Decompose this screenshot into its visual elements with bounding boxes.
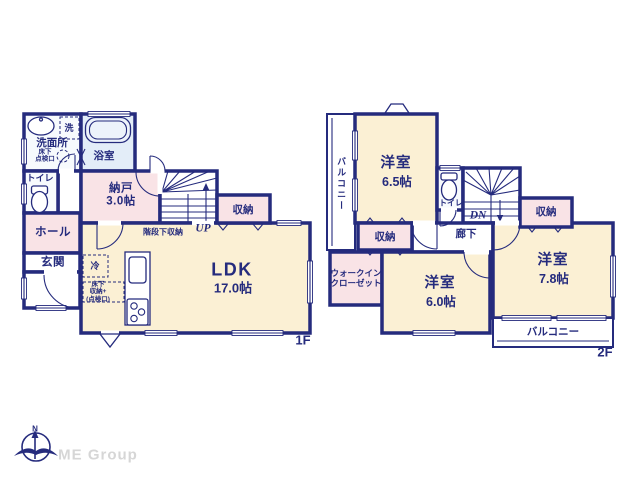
closet-east-room (520, 198, 572, 227)
floor1-walls (24, 114, 310, 333)
floorplan-canvas: 洗 洗面所 床下 点検口 浴室 トイレ 納戸 3.0帖 階段下収納 UP 収納 … (0, 0, 640, 480)
balcony-side (327, 114, 355, 250)
bay-window-icon (385, 104, 409, 113)
ldk-room (81, 223, 310, 333)
floor2-fixtures (441, 173, 457, 200)
closet-center-room (358, 223, 412, 250)
balcony-south (493, 318, 613, 347)
walk-in-closet-room (330, 252, 382, 305)
floor2-walls (327, 104, 613, 347)
toilet-icon-2f (441, 173, 457, 180)
bedroom-c-room (493, 223, 613, 318)
entrance-vestibule (24, 272, 80, 308)
corridor-1f (58, 171, 81, 213)
floorplan-geometry (0, 0, 640, 480)
storage-room-1f (81, 171, 160, 223)
closet-1f (217, 195, 270, 223)
kitchen-sink-icon (129, 257, 146, 283)
compass-icon (14, 430, 58, 461)
bedroom-a-room (355, 114, 437, 223)
hall-room (24, 213, 80, 253)
corridor-2f (412, 223, 493, 252)
bedroom-b-room (382, 252, 490, 333)
entrance-room (24, 253, 80, 272)
